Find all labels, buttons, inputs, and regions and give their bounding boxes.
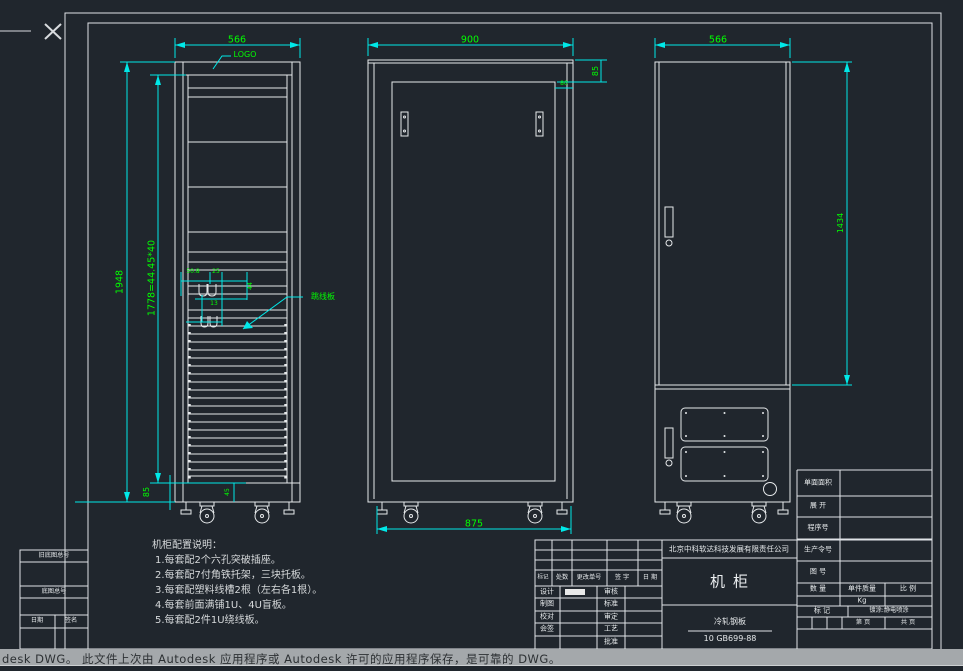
rev-header-count: 处数 — [556, 575, 568, 581]
detail-dim-1: 50.8 — [186, 269, 199, 275]
unit-weight-value: Kg — [857, 598, 866, 605]
coating-label: 镀涂:静电喷涂 — [869, 608, 908, 614]
notes-title: 机柜配置说明： — [152, 541, 222, 551]
info-program-label: 程序号 — [808, 525, 829, 532]
notes-item-1: 1.每套配2个六孔突破插座。 — [155, 556, 281, 566]
front-base-dim: 85 — [143, 487, 151, 497]
sig-countersign-label: 会签 — [540, 626, 554, 633]
rev-header-docno: 更改单号 — [577, 575, 602, 581]
jumper-board-label: 跳线板 — [311, 293, 335, 301]
qty-label: 数 量 — [810, 586, 826, 593]
sig-check-label: 校对 — [540, 614, 554, 621]
old-base-drawing-label: 旧底图总号 — [39, 553, 70, 559]
front-view — [175, 62, 300, 523]
notes-item-5: 5.每套配2件1U绕线板。 — [155, 616, 265, 626]
rev-header-date: 日 期 — [643, 575, 657, 581]
date-label: 日期 — [31, 618, 43, 624]
rev-header-sign: 签 字 — [615, 575, 629, 581]
jumper-leader — [243, 297, 303, 329]
wheelbase-dim: 875 — [465, 519, 483, 529]
rear-view — [655, 62, 790, 523]
notes-item-2: 2.每套配7付角铁托架，三块托板。 — [155, 571, 311, 581]
rev-header-mark: 标记 — [537, 575, 548, 581]
sig-approve-label: 批准 — [604, 639, 618, 646]
middle-view — [368, 60, 573, 523]
sig-process-label: 工艺 — [604, 626, 618, 633]
status-bar: desk DWG。 此文件上次由 Autodesk 应用程序或 Autodesk… — [0, 649, 963, 666]
logo-label: LOGO — [234, 51, 257, 59]
notes-item-3: 3.每套配塑料线槽2根（左右各1根）。 — [155, 586, 322, 596]
company-name: 北京中科软达科技发展有限责任公司 — [669, 545, 789, 553]
front-base-inner-dim: 45 — [225, 488, 231, 496]
middle-offset-dim: 80 — [560, 81, 568, 87]
signature-mark — [565, 589, 585, 595]
mark-label: 标 记 — [814, 608, 830, 615]
margin-table-grid — [20, 550, 88, 649]
rear-width-dim: 566 — [709, 35, 727, 45]
detail-dim-4: 13 — [210, 301, 218, 307]
middle-width-dim: 900 — [461, 35, 479, 45]
front-height-dim: 1948 — [115, 270, 125, 294]
info-unfold-label: 展 开 — [810, 503, 826, 510]
sig-design-label: 设计 — [540, 589, 554, 596]
sig-approve2-label: 审定 — [604, 614, 618, 621]
cad-viewport: 566 LOGO 1948 1778=44.45*40 85 45 50.8 2… — [0, 0, 963, 671]
sig-standard-label: 标准 — [604, 601, 618, 608]
detail-dim-3: 44 — [248, 282, 254, 290]
info-order-label: 生产令号 — [804, 547, 832, 554]
info-area-label: 单面面积 — [804, 480, 832, 487]
trusted-dwg-message: desk DWG。 此文件上次由 Autodesk 应用程序或 Autodesk… — [2, 651, 561, 667]
sheet-frame — [65, 13, 941, 649]
middle-top-dim: 85 — [592, 66, 600, 76]
detail-dim-2: 25 — [212, 269, 220, 275]
page-label: 第 页 — [856, 620, 870, 626]
unit-weight-label: 单件质量 — [848, 586, 876, 593]
sig-audit-label: 审核 — [604, 589, 618, 596]
pages-total-label: 共 页 — [901, 620, 915, 626]
material-standard: 10 GB699-88 — [704, 635, 757, 643]
scale-label: 比 例 — [900, 586, 916, 593]
base-drawing-label: 底图总号 — [42, 589, 67, 595]
front-width-dim: 566 — [228, 35, 246, 45]
rear-height-dim: 1434 — [837, 213, 845, 233]
close-icon[interactable] — [45, 24, 61, 39]
notes-item-4: 4.每套前面满铺1U、4U盲板。 — [155, 601, 292, 611]
sig-draw-label: 制图 — [540, 601, 554, 608]
material-name: 冷轧钢板 — [714, 618, 746, 626]
front-rack-dim: 1778=44.45*40 — [147, 240, 157, 316]
info-figno-label: 图 号 — [810, 569, 826, 576]
drawing-title: 机柜 — [710, 575, 756, 590]
sign-label: 签名 — [65, 618, 77, 624]
